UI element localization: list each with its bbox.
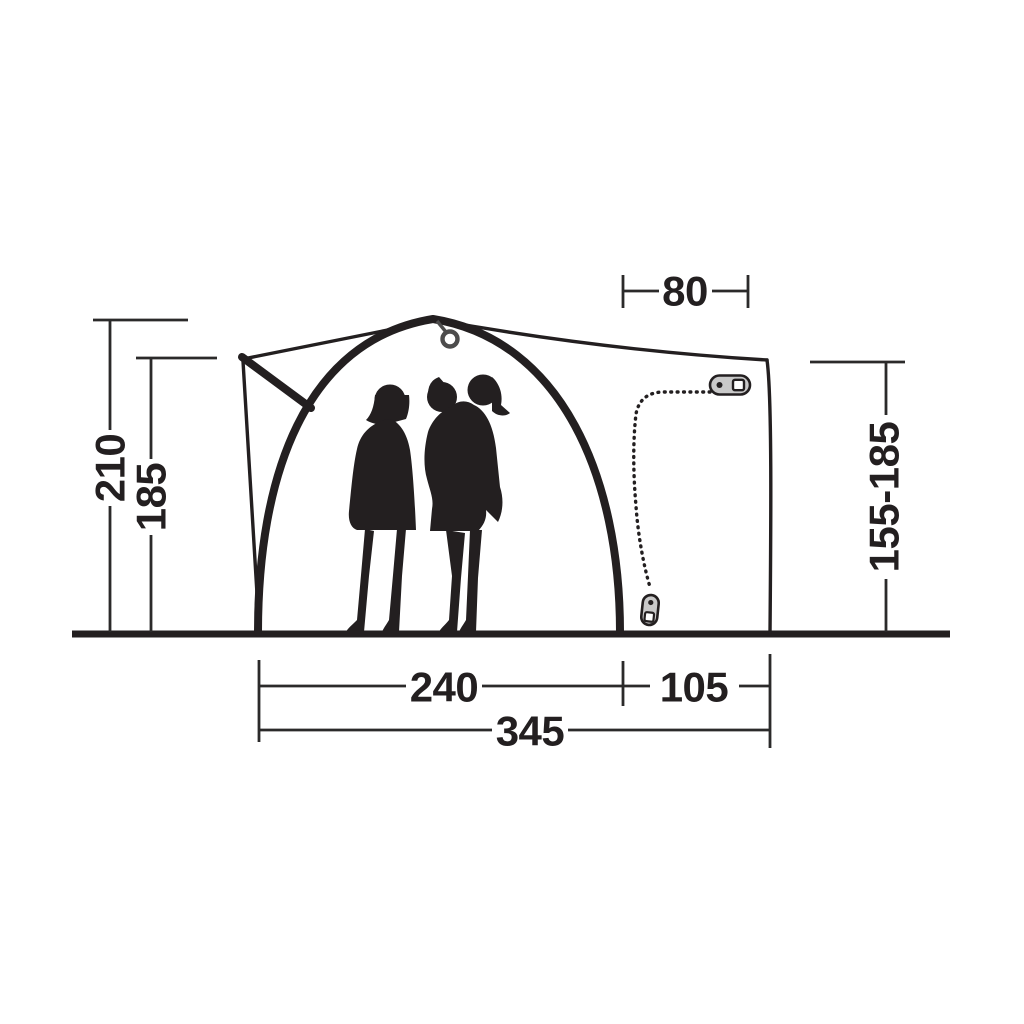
adult-silhouette-left: [346, 385, 416, 633]
canopy-height-label: 185: [128, 463, 175, 532]
family-silhouette: [346, 375, 510, 633]
canopy-strut: [242, 357, 311, 408]
peak-height-label: 210: [87, 434, 134, 503]
zipper-track: [634, 392, 710, 587]
diagram-canvas: 210 185 80 155-185 240 105 345: [0, 0, 1024, 1024]
zipper-pull-bottom-icon: [640, 594, 659, 626]
rear-depth-label: 105: [660, 664, 729, 711]
canopy-guy-line: [243, 361, 259, 627]
adult-with-child-silhouette: [424, 375, 510, 633]
dimension-rear-top-width: 80: [623, 268, 748, 315]
zipper-pull-top-icon: [710, 376, 750, 395]
total-width-label: 345: [496, 708, 565, 755]
rear-height-range-label: 155-185: [861, 422, 908, 573]
dimension-canopy-height: 185: [128, 358, 218, 632]
dimension-rear-height-range: 155-185: [810, 362, 908, 632]
tent-outline: [242, 319, 771, 634]
rear-wall-line: [767, 360, 771, 634]
rear-top-width-label: 80: [662, 268, 708, 315]
tent-dimension-diagram: 210 185 80 155-185 240 105 345: [0, 0, 1024, 1024]
inner-width-label: 240: [410, 664, 479, 711]
canopy-ridge-line: [243, 322, 428, 359]
dimension-bottom-widths: 240 105 345: [259, 654, 770, 755]
